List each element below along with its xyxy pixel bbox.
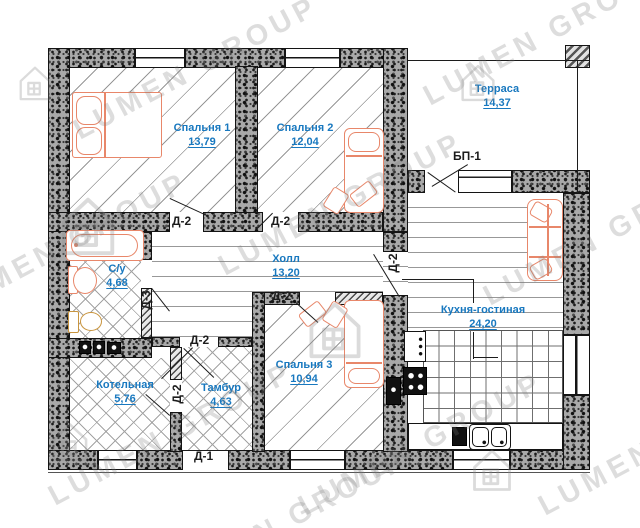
door-mark-d2-kitchen: Д-2 [386, 253, 400, 272]
foundation-line [48, 472, 590, 473]
kitchen-zone-line-4 [473, 357, 498, 358]
door-mark-d1-entry: Д-1 [194, 449, 213, 463]
wall-bedrooms-south-2 [203, 212, 263, 232]
room-name: Спальня 3 [276, 359, 333, 371]
window-kitchen-south [453, 450, 510, 470]
room-label-tambour: Тамбур 4,63 [201, 381, 241, 410]
stove [403, 367, 427, 395]
door-mark-d2-bedroom2: Д-2 [271, 214, 290, 228]
room-area: 24,20 [441, 317, 525, 331]
sofa-backrest-line [547, 204, 549, 276]
room-area: 13,79 [174, 135, 231, 149]
room-area: 10,94 [276, 372, 333, 386]
door-mark-bp1-balcony: БП-1 [453, 149, 481, 163]
wall-right-2 [563, 395, 590, 470]
wall-top-2 [185, 48, 285, 68]
room-area: 12,04 [277, 135, 334, 149]
door-mark-d2-boiler: Д-2 [170, 384, 184, 403]
window-kitchen-east [563, 335, 590, 395]
sink-basin-1 [472, 427, 489, 447]
room-name: Тамбур [201, 382, 241, 394]
bed3-pillow [348, 368, 380, 384]
terrace-edge-top [408, 60, 590, 61]
room-name: Котельная [96, 379, 154, 391]
kitchen-zone-line-1 [402, 279, 474, 280]
counter-appliance [452, 427, 467, 446]
room-label-boiler: Котельная 5,76 [96, 378, 154, 407]
room-label-terrace: Терраса 14,37 [475, 82, 519, 111]
wall-boiler-tambour-2 [170, 412, 182, 452]
wall-bed2-terrace [383, 48, 408, 232]
room-label-kitchen-living: Кухня-гостиная 24,20 [441, 303, 525, 332]
wall-kitchen-north-1 [408, 170, 425, 193]
bed1-pillow-2 [76, 127, 102, 155]
room-label-hall: Холл 13,20 [272, 252, 300, 281]
wall-bedrooms-south-3 [298, 212, 383, 232]
room-area: 4,63 [201, 395, 241, 409]
window-bedroom3 [290, 450, 345, 470]
bed2-pillow [348, 132, 380, 152]
watermark-text: LUMEN GROUP [418, 0, 640, 113]
floor-hall-corridor [152, 292, 252, 337]
wall-bottom-4 [345, 450, 453, 470]
door-mark-d2-bedroom3: Д-2 [272, 289, 291, 303]
laundry-appliance-3 [107, 342, 121, 354]
sink-basin-2 [491, 427, 507, 447]
toilet-bowl [80, 312, 102, 331]
door-mark-d3-bathroom: Д-3 [139, 290, 153, 309]
window-boiler [98, 450, 137, 470]
room-area: 13,20 [272, 266, 300, 280]
bed2-mattress-line [346, 155, 382, 157]
laundry-appliance-1 [79, 341, 91, 354]
bed3-mattress-line [346, 362, 382, 364]
floor-kitchen-tiles [423, 330, 563, 423]
room-name: Холл [272, 253, 300, 265]
window-bedroom2 [285, 48, 340, 68]
room-label-bedroom2: Спальня 2 12,04 [277, 121, 334, 150]
kitchen-zone-line-2 [473, 279, 474, 303]
kitchen-zone-line-3 [473, 332, 474, 359]
wall-right-1 [563, 193, 590, 335]
room-name: Терраса [475, 83, 519, 95]
bathtub-inner [71, 234, 138, 257]
toilet-tank [68, 311, 79, 333]
water-heater [386, 377, 401, 405]
fridge [404, 331, 426, 362]
room-name: С/у [108, 263, 125, 275]
bed1-mattress-line [104, 93, 106, 157]
room-label-bathroom: С/у 4,68 [106, 262, 127, 291]
room-label-bedroom3: Спальня 3 10,94 [276, 358, 333, 387]
room-name: Спальня 1 [174, 122, 231, 134]
wall-bed3-west [252, 292, 265, 452]
floor-hall [152, 232, 383, 292]
wall-bottom-2 [137, 450, 183, 470]
balcony-window-unit [458, 170, 512, 193]
window-bedroom1 [135, 48, 185, 68]
wall-bed1-bed2 [235, 66, 258, 214]
wall-bedrooms-south-1 [48, 212, 170, 232]
bed1-pillow-1 [76, 96, 102, 125]
washbasin [73, 267, 97, 294]
wall-hall-kitchen-1 [383, 232, 408, 252]
sofa-seam-1 [529, 226, 561, 228]
room-name: Спальня 2 [277, 122, 334, 134]
wall-corridor-south-2 [218, 337, 252, 347]
bathtub-faucet [74, 243, 78, 247]
laundry-appliance-2 [93, 341, 105, 354]
door-mark-d2-bedroom1: Д-2 [172, 214, 191, 228]
wall-bottom-3 [228, 450, 290, 470]
room-area: 5,76 [96, 392, 154, 406]
room-label-bedroom1: Спальня 1 13,79 [174, 121, 231, 150]
room-area: 14,37 [475, 96, 519, 110]
terrace-edge-right [577, 60, 578, 193]
room-name: Кухня-гостиная [441, 304, 525, 316]
wall-bottom-1 [48, 450, 98, 470]
room-area: 4,68 [106, 276, 127, 290]
sofa-seam-2 [529, 256, 561, 258]
door-mark-d2-corridor: Д-2 [190, 333, 209, 347]
wall-corridor-south-1 [152, 337, 180, 347]
floor-plan: Спальня 1 13,79 Спальня 2 12,04 Терраса … [0, 0, 640, 528]
